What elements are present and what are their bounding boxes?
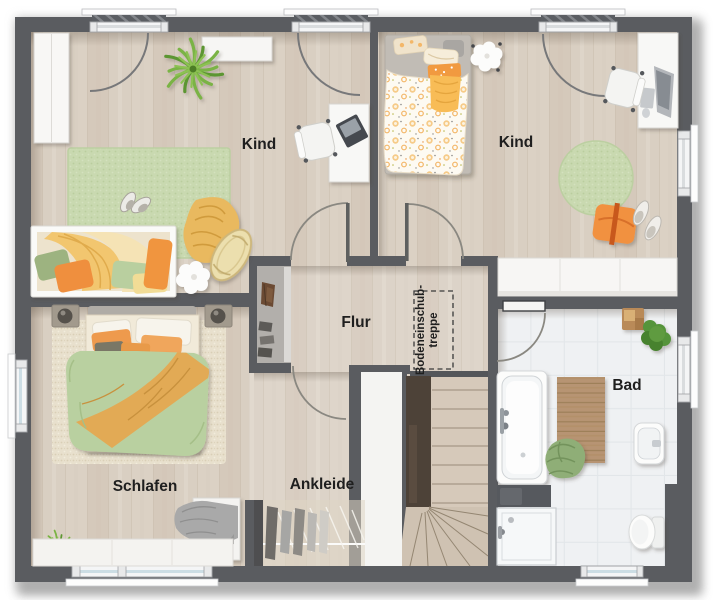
svg-text:Kind: Kind xyxy=(499,134,533,151)
svg-text:treppe: treppe xyxy=(428,312,440,347)
svg-text:Kind: Kind xyxy=(242,136,276,153)
svg-text:Ankleide: Ankleide xyxy=(290,476,355,493)
svg-text:Bad: Bad xyxy=(612,377,641,394)
svg-text:Schlafen: Schlafen xyxy=(113,478,178,495)
svg-text:Flur: Flur xyxy=(341,314,370,331)
svg-text:Bodeneinschub-: Bodeneinschub- xyxy=(415,285,427,375)
